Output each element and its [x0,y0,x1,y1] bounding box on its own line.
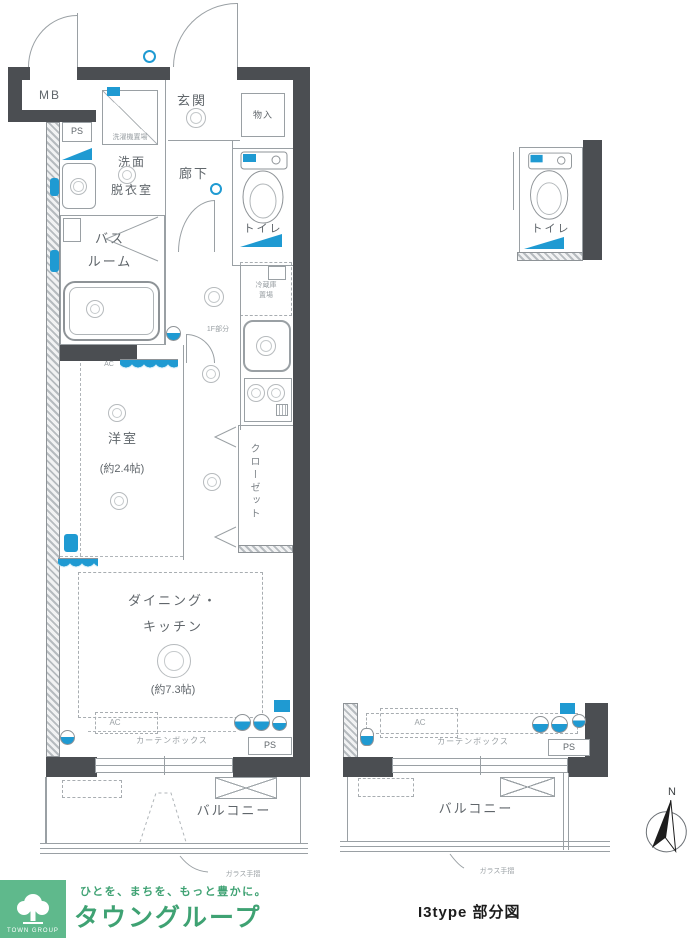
town-group-logo: TOWN GROUP [0,880,66,938]
bath-folding-door-icon [106,217,158,261]
overlay-lines [0,0,700,938]
plan-caption: I3type 部分図 [418,901,521,922]
compass-icon [638,793,698,862]
logo-tagline: ひとを、まちを、もっと豊かに。 [80,883,267,899]
leader-line [180,856,208,872]
closet-door-chevron-icon [215,527,236,547]
leader-line [450,854,464,868]
closet-door-chevron-icon [215,427,236,447]
floorplan-canvas: MB PS 洗濯機置場 洗面 脱衣室 玄関 物入 廊下 1F部分 トイレ バス … [0,0,700,938]
balcony-dash-shape [140,793,186,842]
tree-icon [11,892,55,928]
logo-name: タウングループ [74,898,262,934]
logo-en-text: TOWN GROUP [7,928,59,934]
